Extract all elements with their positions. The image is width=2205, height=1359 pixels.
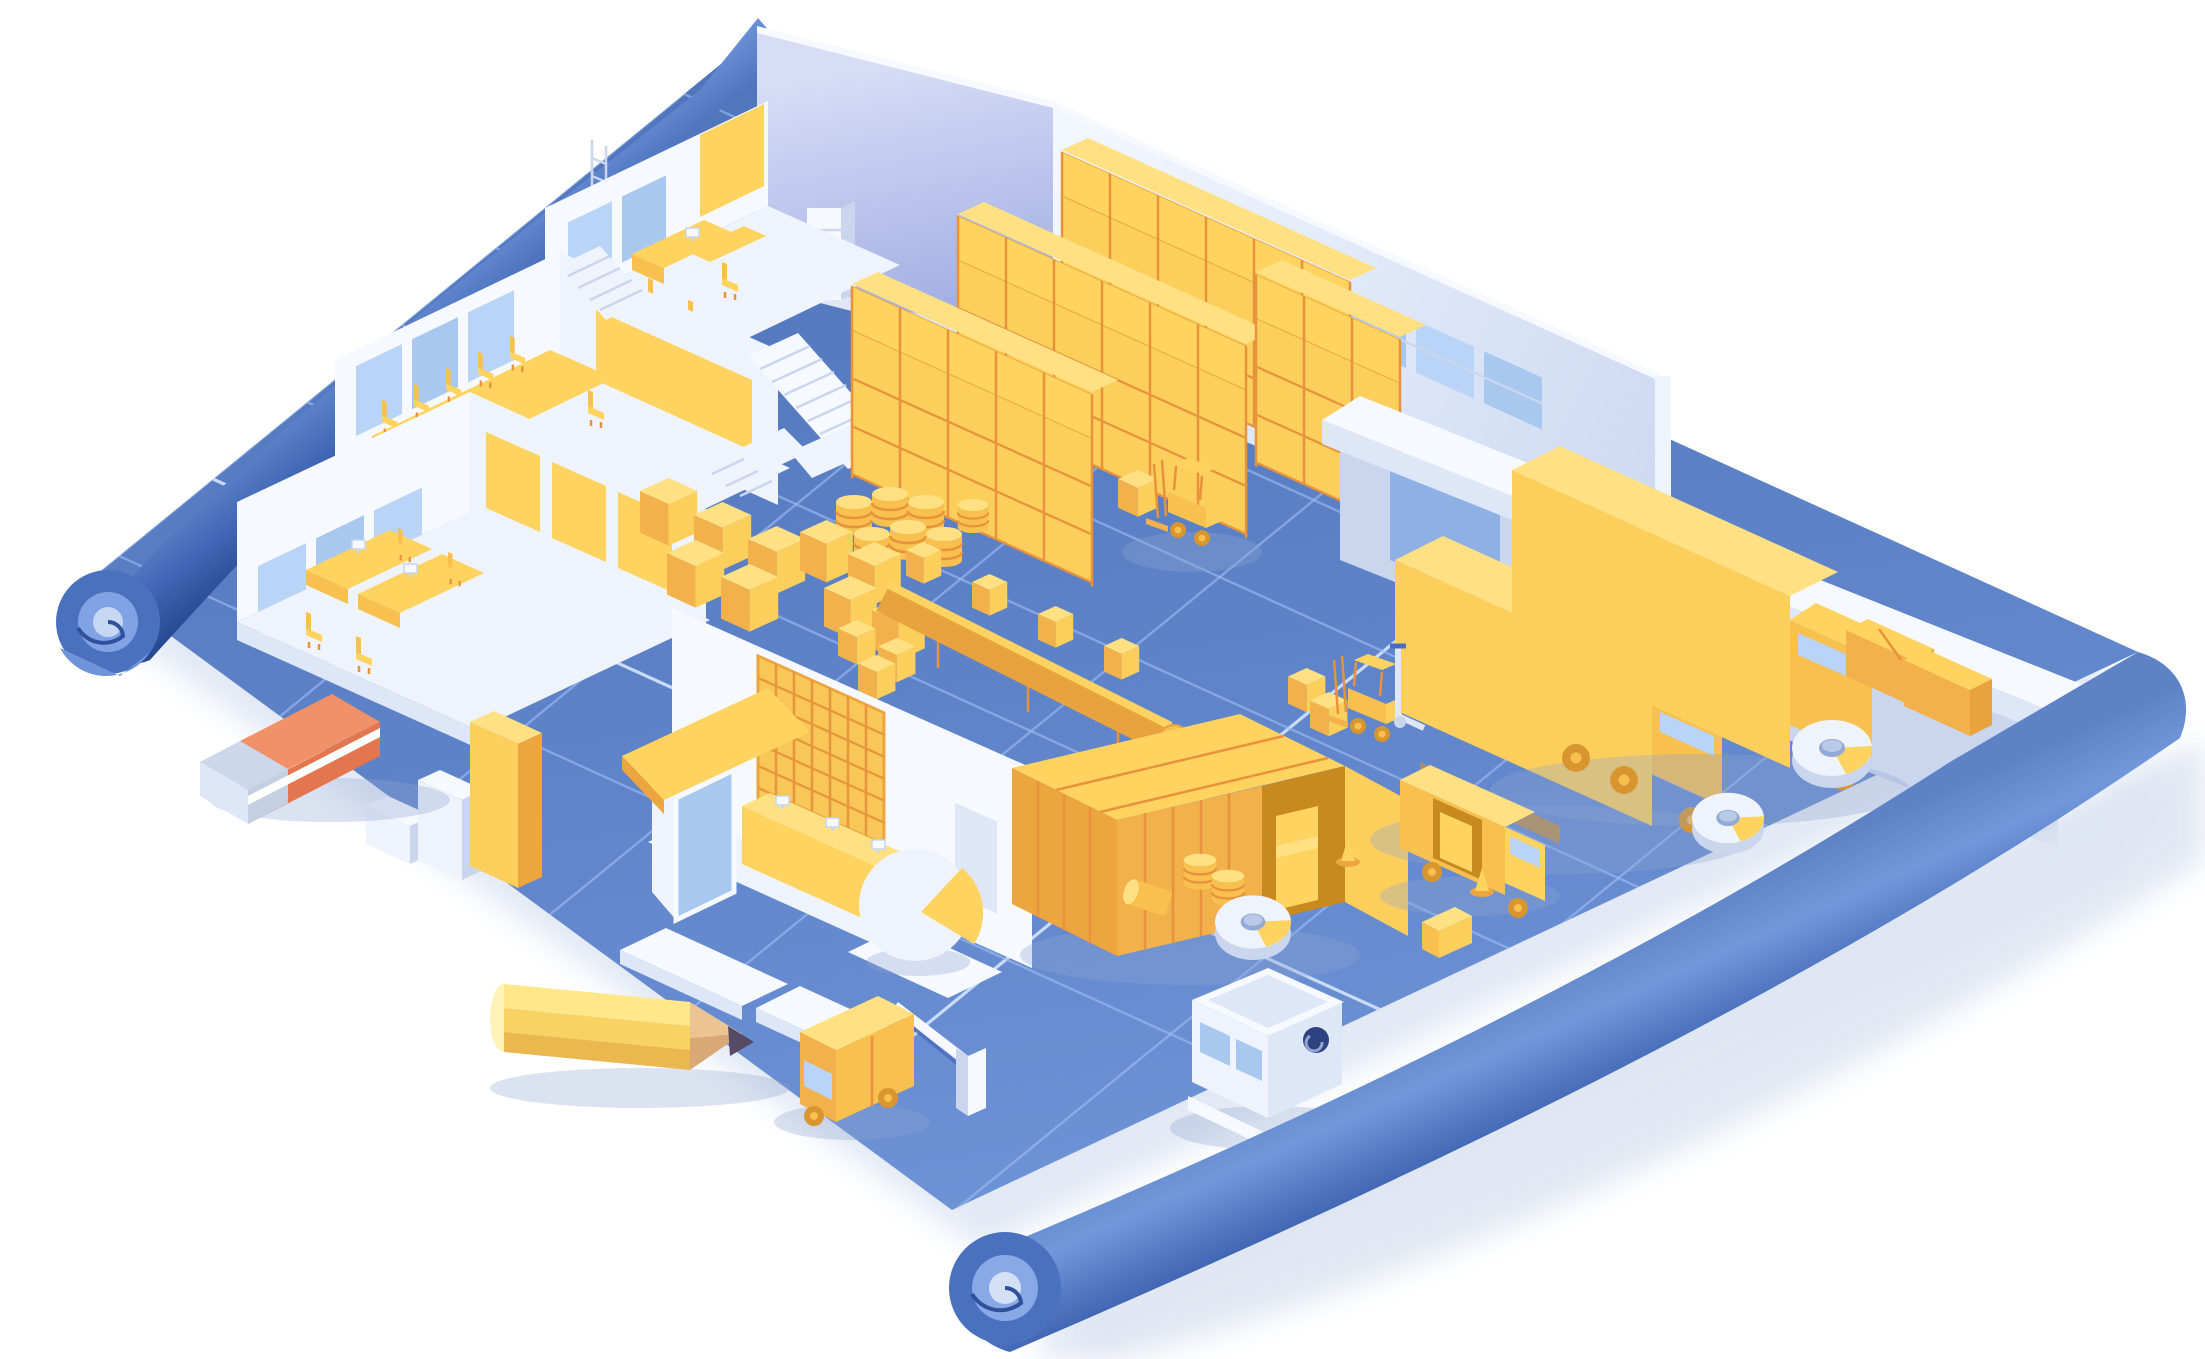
pallet-crate (1118, 470, 1158, 517)
illustration-stage: Isometric 3D illustration of a warehouse… (0, 0, 2205, 1359)
yard-crate (1310, 692, 1347, 736)
warehouse-blueprint-illustration: Isometric 3D illustration of a warehouse… (0, 0, 2205, 1359)
donut-chart (1792, 720, 1872, 788)
donut-chart (1692, 793, 1764, 854)
donut-chart (1215, 895, 1291, 960)
camera-emblem-icon (1303, 1027, 1329, 1053)
